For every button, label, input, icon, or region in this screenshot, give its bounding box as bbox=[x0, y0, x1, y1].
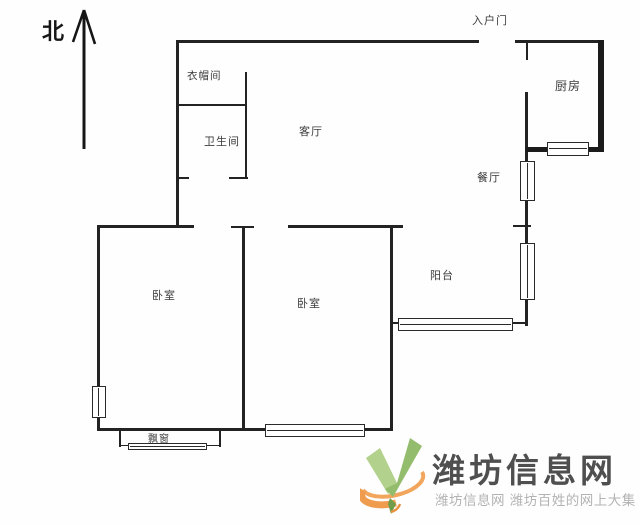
entrance-door-label: 入户门 bbox=[472, 12, 508, 28]
bathroom-label: 卫生间 bbox=[204, 133, 240, 149]
balcony-label: 阳台 bbox=[430, 267, 454, 283]
kitchen-label: 厨房 bbox=[555, 77, 581, 94]
kitchen-window bbox=[547, 142, 589, 156]
bedroom2-window bbox=[265, 424, 365, 437]
dining-window bbox=[520, 161, 535, 201]
bedroom-left-label: 卧室 bbox=[152, 287, 176, 303]
bay-window-conn-right bbox=[206, 445, 220, 446]
watermark-site-name: 潍坊信息网 bbox=[432, 444, 617, 492]
bay-window-label: 飘窗 bbox=[148, 430, 170, 445]
dining-room-label: 餐厅 bbox=[477, 169, 501, 185]
wall-bedrooms-divider bbox=[242, 228, 245, 431]
wall-bedroom2-right bbox=[390, 225, 393, 431]
north-arrow-icon bbox=[66, 4, 102, 154]
balcony-side-window bbox=[520, 243, 535, 300]
wall-bedroom1-top bbox=[97, 225, 194, 228]
wall-left-upper bbox=[176, 40, 179, 228]
wall-balcony-stub-right bbox=[513, 322, 528, 324]
wall-cloakroom-divider bbox=[176, 104, 247, 106]
north-label: 北 bbox=[42, 14, 64, 46]
wall-top-right bbox=[515, 40, 604, 43]
wall-bedroom2-top bbox=[288, 225, 403, 228]
cloakroom-label: 衣帽间 bbox=[187, 68, 222, 83]
wall-kitchen-doorframe bbox=[526, 43, 528, 60]
watermark: 潍坊信息网 潍坊信息网 潍坊百姓的网上大集 bbox=[360, 434, 640, 525]
wall-bathroom-south-left bbox=[176, 177, 189, 179]
floorplan-image: 北 入户门 衣帽间 卫生间 客厅 厨房 餐厅 阳台 卧室 卧室 飘窗 bbox=[0, 0, 640, 525]
watermark-tagline: 潍坊信息网 潍坊百姓的网上大集 bbox=[435, 489, 636, 509]
living-room-label: 客厅 bbox=[299, 123, 323, 139]
wall-top-left bbox=[176, 40, 479, 43]
bedroom1-side-window bbox=[92, 386, 106, 418]
wall-dining-balcony-tick bbox=[513, 225, 531, 227]
balcony-bottom-window bbox=[398, 318, 513, 331]
wall-kitchen-right bbox=[598, 40, 604, 152]
bedroom-middle-label: 卧室 bbox=[297, 295, 321, 311]
wall-bathroom-south-right bbox=[229, 177, 248, 179]
wall-bathroom-right bbox=[245, 72, 247, 179]
watermark-logo-icon bbox=[360, 434, 426, 519]
